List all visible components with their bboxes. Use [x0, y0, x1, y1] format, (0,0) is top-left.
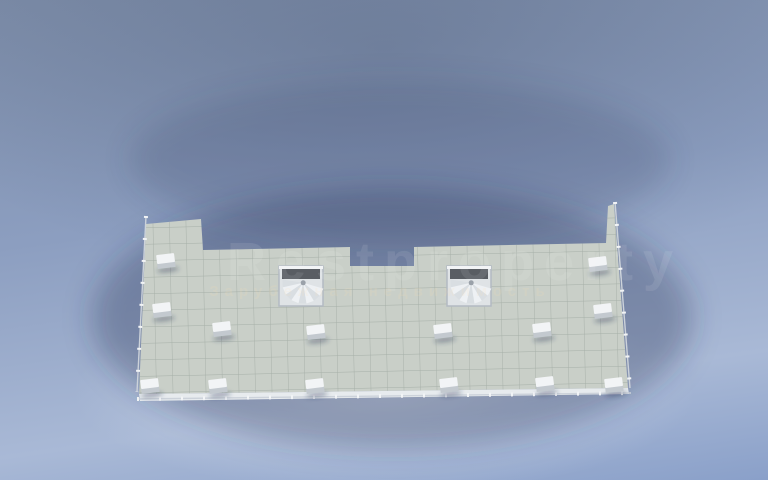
render-canvas: Restproperty Зарубежная недвижимость	[0, 0, 768, 480]
watermark-subtitle: Зарубежная недвижимость	[209, 283, 550, 300]
floorplan-3d-render: Restproperty Зарубежная недвижимость	[0, 0, 768, 480]
watermark: Restproperty Зарубежная недвижимость	[209, 232, 683, 300]
